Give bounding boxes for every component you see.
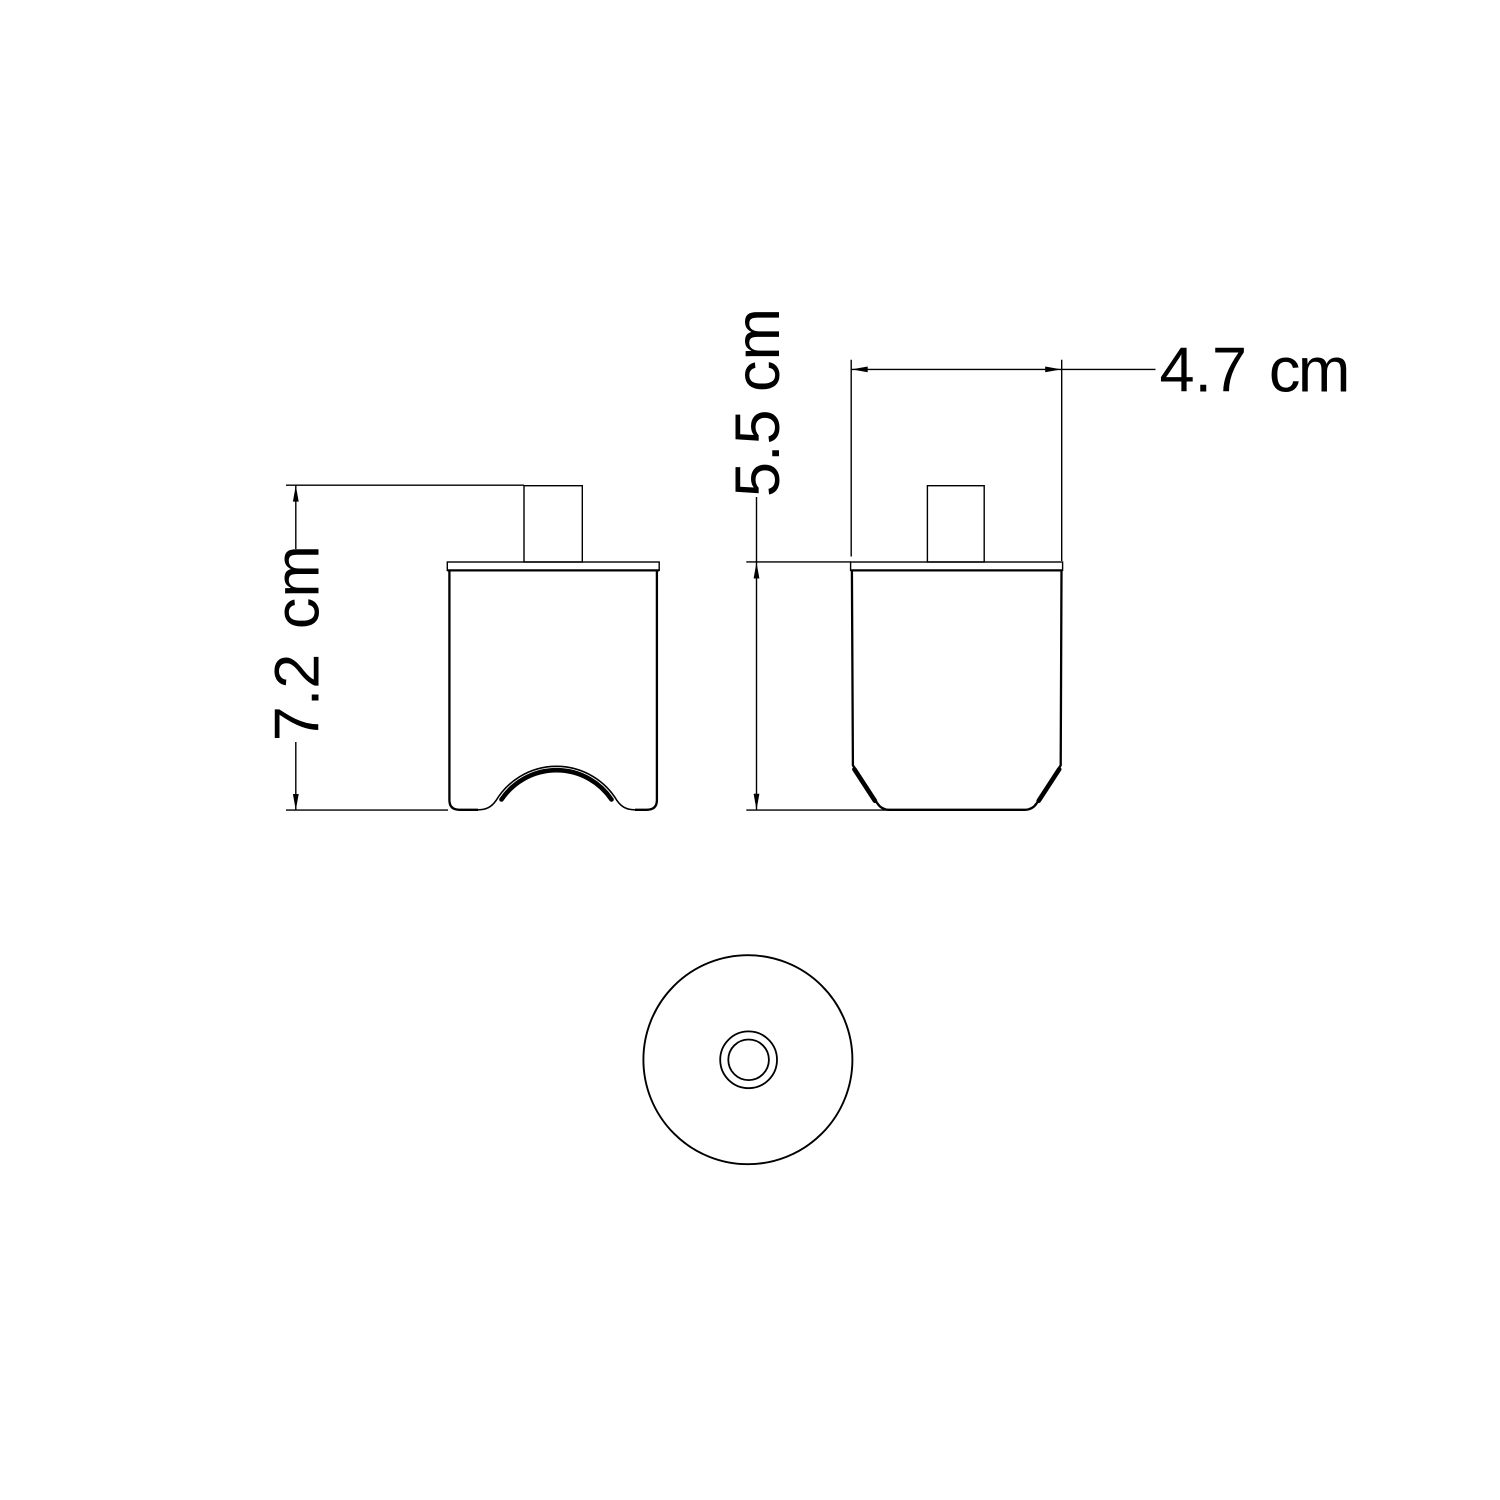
svg-text:5.5 cm: 5.5 cm — [723, 308, 793, 497]
svg-text:7.2 cm: 7.2 cm — [263, 545, 333, 741]
